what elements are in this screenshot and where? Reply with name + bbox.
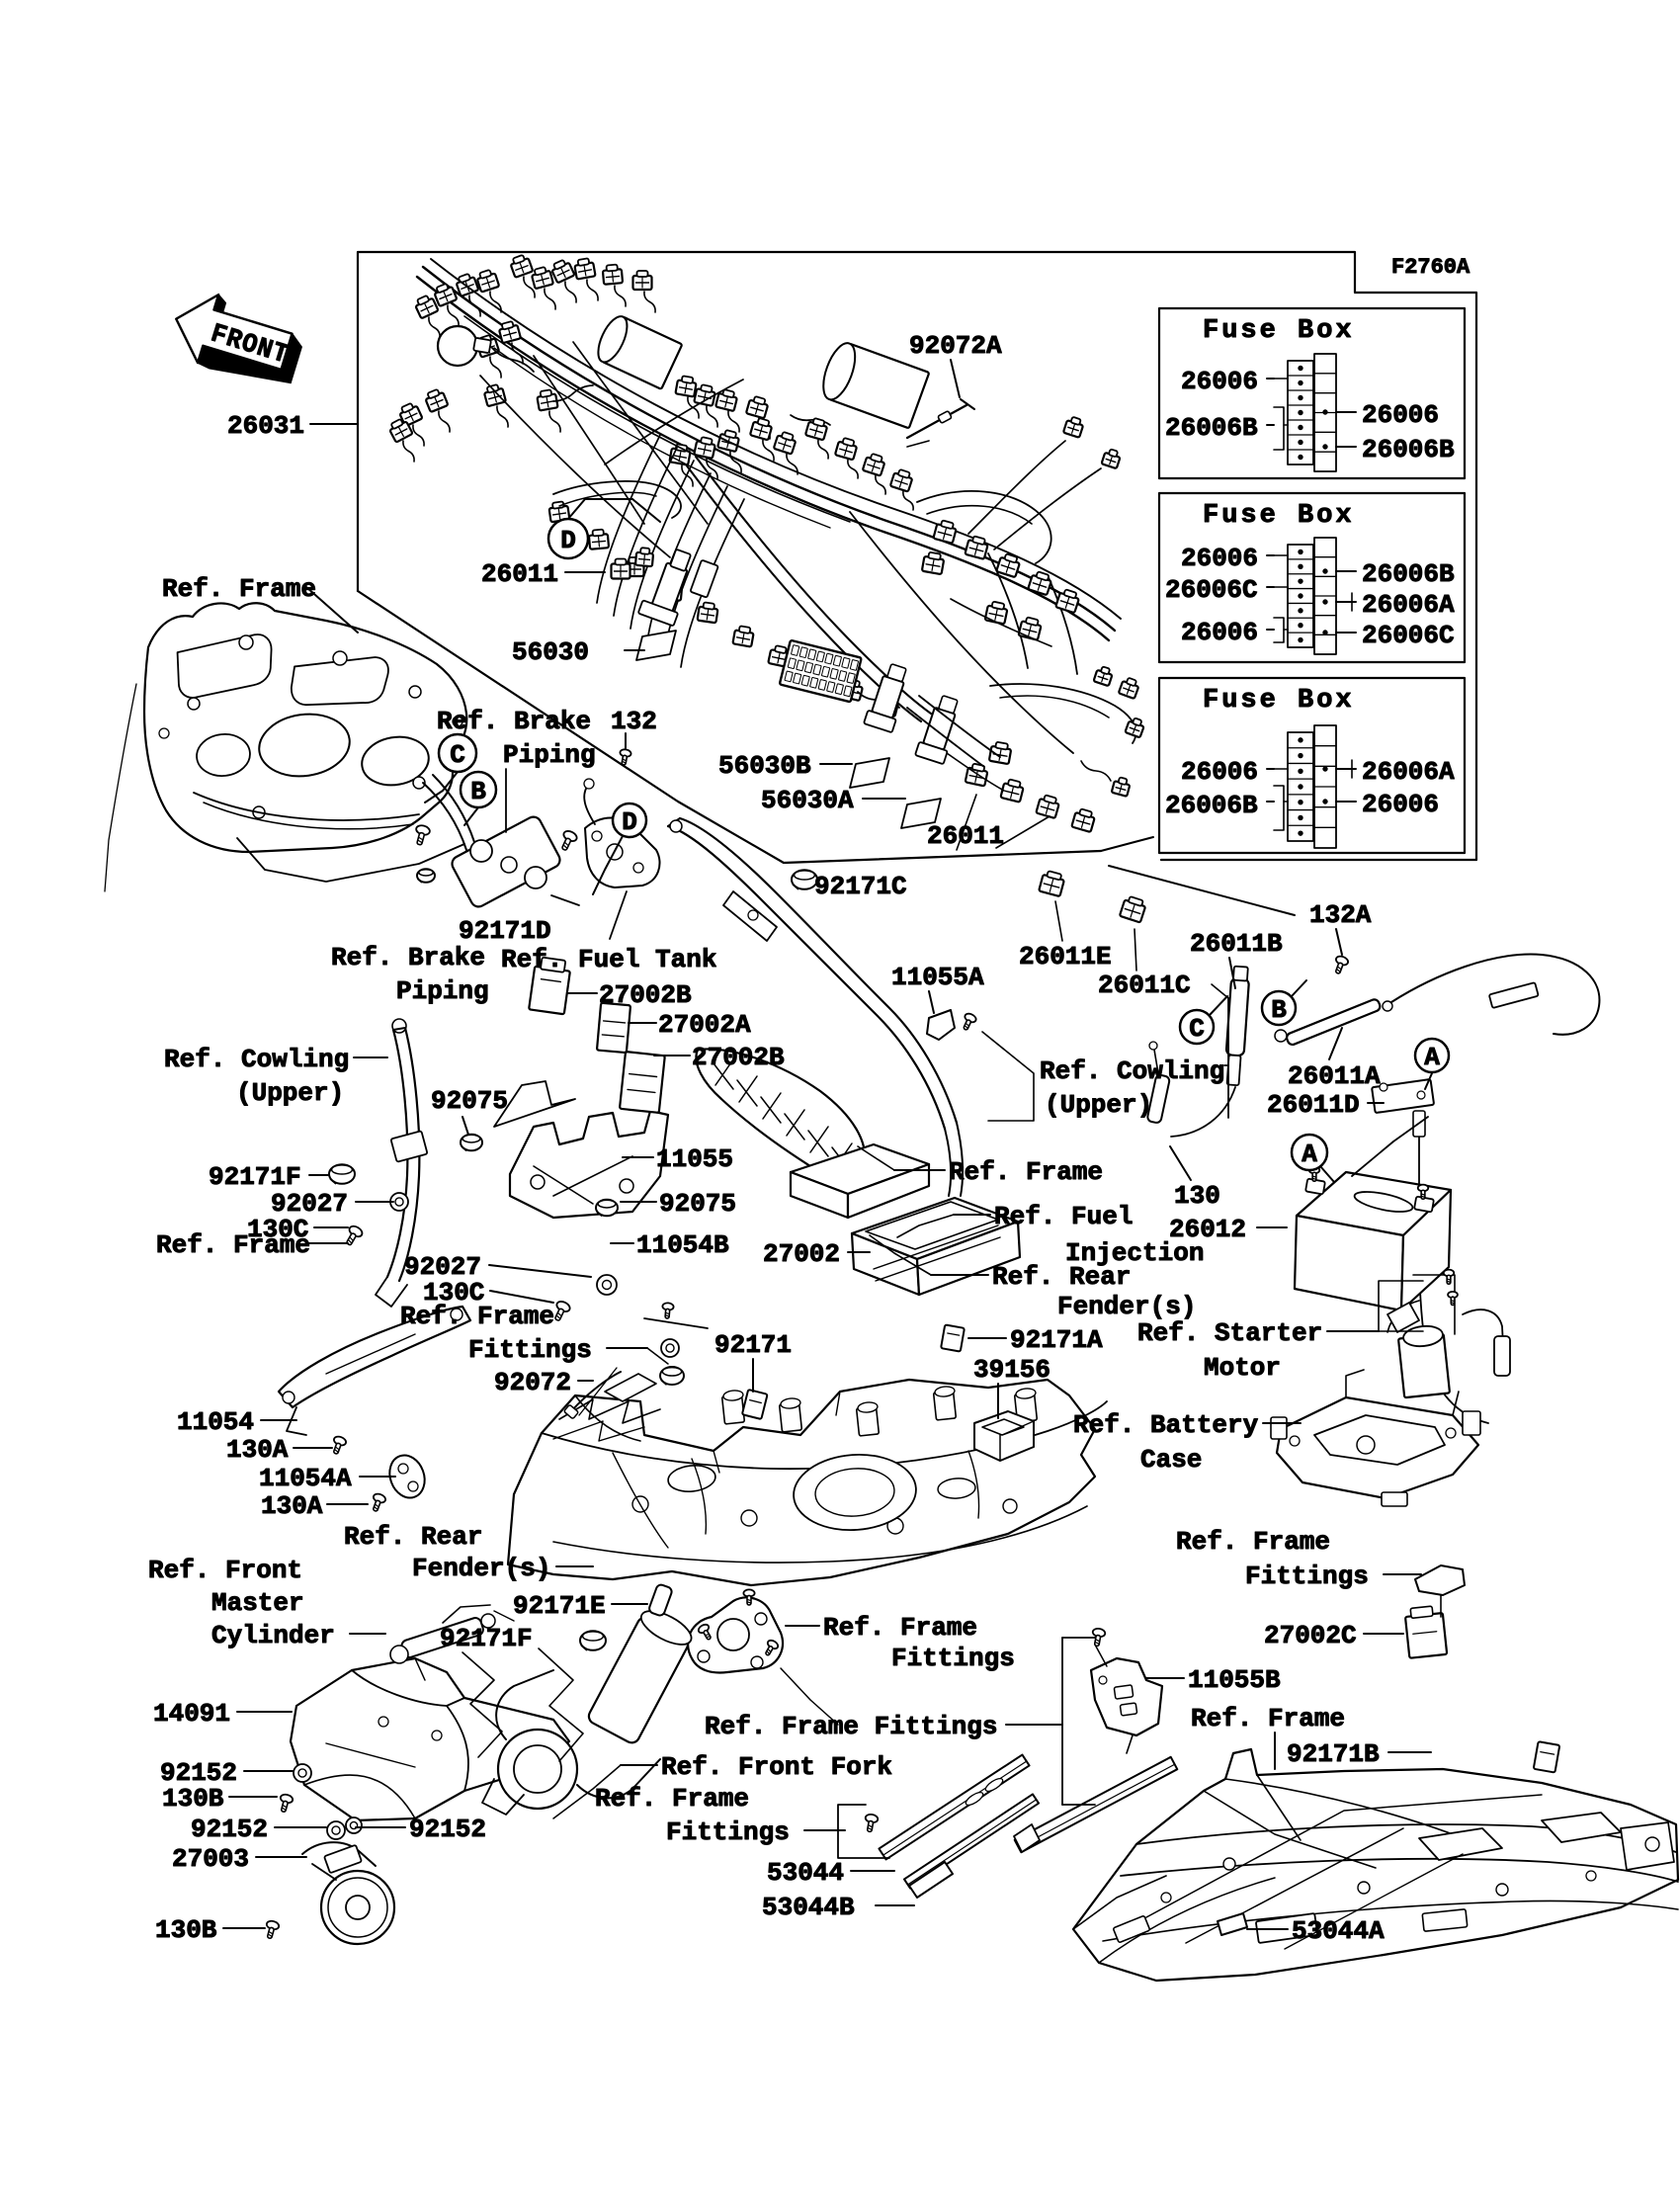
svg-text:B: B: [1271, 995, 1287, 1025]
svg-text:Ref. Rear: Ref. Rear: [992, 1262, 1131, 1292]
svg-text:Fuse Box: Fuse Box: [1203, 316, 1355, 346]
svg-text:Master: Master: [211, 1588, 304, 1618]
svg-text:26006C: 26006C: [1362, 621, 1455, 650]
svg-text:Fittings: Fittings: [1245, 1562, 1369, 1591]
svg-text:26011D: 26011D: [1267, 1090, 1360, 1120]
svg-text:56030: 56030: [512, 637, 589, 667]
svg-text:Ref. Fuel: Ref. Fuel: [994, 1202, 1133, 1231]
svg-text:132A: 132A: [1309, 900, 1372, 930]
svg-text:Fender(s): Fender(s): [412, 1554, 550, 1583]
svg-text:130A: 130A: [226, 1435, 289, 1465]
svg-text:Ref. Front Fork: Ref. Front Fork: [661, 1752, 892, 1782]
svg-text:92152: 92152: [191, 1815, 268, 1844]
svg-text:132: 132: [611, 707, 657, 736]
svg-text:A: A: [1424, 1043, 1440, 1072]
svg-text:39156: 39156: [973, 1355, 1050, 1385]
svg-text:C: C: [450, 740, 465, 770]
svg-text:D: D: [622, 807, 637, 837]
svg-text:92072A: 92072A: [909, 331, 1002, 361]
svg-text:26011A: 26011A: [1288, 1061, 1381, 1091]
svg-text:56030A: 56030A: [761, 786, 854, 815]
svg-text:Fuse Box: Fuse Box: [1203, 686, 1355, 716]
svg-text:26006B: 26006B: [1362, 559, 1455, 589]
svg-text:11055B: 11055B: [1188, 1665, 1281, 1695]
svg-text:11054: 11054: [177, 1407, 254, 1437]
svg-text:26006B: 26006B: [1362, 435, 1455, 465]
svg-text:Ref. Frame: Ref. Frame: [949, 1157, 1103, 1187]
svg-text:Motor: Motor: [1204, 1353, 1281, 1383]
svg-text:Fender(s): Fender(s): [1057, 1292, 1196, 1321]
svg-text:92075: 92075: [659, 1189, 736, 1219]
svg-text:Ref. Front: Ref. Front: [148, 1556, 302, 1585]
svg-text:130A: 130A: [261, 1491, 323, 1521]
svg-text:11055: 11055: [656, 1144, 733, 1174]
svg-text:92171B: 92171B: [1287, 1739, 1380, 1769]
svg-text:Ref. Frame: Ref. Frame: [595, 1784, 749, 1814]
svg-text:92171A: 92171A: [1010, 1325, 1103, 1355]
svg-text:Piping: Piping: [396, 976, 489, 1006]
svg-text:92171D: 92171D: [459, 916, 551, 946]
svg-text:26006A: 26006A: [1362, 590, 1455, 620]
svg-text:Case: Case: [1140, 1445, 1202, 1475]
svg-text:26006: 26006: [1362, 400, 1439, 430]
svg-text:53044: 53044: [767, 1858, 844, 1888]
svg-text:F2760A: F2760A: [1391, 255, 1470, 280]
svg-text:27002: 27002: [763, 1239, 840, 1269]
svg-text:92075: 92075: [431, 1086, 508, 1116]
svg-text:92171C: 92171C: [814, 872, 907, 901]
svg-text:Fittings: Fittings: [666, 1817, 790, 1847]
svg-text:Fittings: Fittings: [891, 1644, 1015, 1673]
svg-text:Piping: Piping: [503, 740, 596, 770]
svg-text:92171E: 92171E: [513, 1591, 606, 1621]
svg-text:C: C: [1189, 1014, 1205, 1044]
svg-text:14091: 14091: [153, 1699, 230, 1729]
svg-text:27002A: 27002A: [658, 1010, 751, 1040]
svg-text:53044B: 53044B: [762, 1893, 855, 1922]
svg-text:26006B: 26006B: [1165, 791, 1258, 820]
svg-text:92171F: 92171F: [440, 1624, 533, 1653]
svg-text:Ref. Brake: Ref. Brake: [331, 943, 485, 972]
svg-text:26011C: 26011C: [1098, 971, 1191, 1000]
svg-text:26011E: 26011E: [1019, 942, 1112, 972]
svg-text:Ref. Frame: Ref. Frame: [823, 1613, 977, 1643]
svg-text:26011B: 26011B: [1190, 929, 1283, 959]
svg-text:(Upper): (Upper): [1045, 1090, 1152, 1120]
svg-text:Ref. Fuel Tank: Ref. Fuel Tank: [501, 945, 716, 974]
svg-text:Fuse Box: Fuse Box: [1203, 501, 1355, 531]
svg-text:56030B: 56030B: [718, 751, 811, 781]
svg-text:Cylinder: Cylinder: [211, 1621, 335, 1650]
svg-text:Ref. Cowling: Ref. Cowling: [1040, 1056, 1224, 1086]
svg-text:27002C: 27002C: [1264, 1621, 1357, 1650]
svg-text:92072: 92072: [494, 1368, 571, 1397]
svg-text:B: B: [470, 777, 486, 806]
svg-text:27002B: 27002B: [599, 980, 692, 1010]
svg-text:Ref. Frame Fittings: Ref. Frame Fittings: [705, 1712, 997, 1741]
svg-text:Ref. Frame: Ref. Frame: [400, 1302, 554, 1331]
svg-text:Ref. Cowling: Ref. Cowling: [164, 1045, 349, 1074]
svg-text:Ref. Battery: Ref. Battery: [1073, 1410, 1259, 1440]
svg-text:11054A: 11054A: [259, 1464, 352, 1493]
svg-text:27002B: 27002B: [692, 1043, 785, 1072]
svg-text:130: 130: [1174, 1181, 1220, 1211]
svg-text:D: D: [560, 526, 576, 555]
svg-text:92152: 92152: [409, 1815, 486, 1844]
svg-text:130B: 130B: [155, 1915, 217, 1945]
svg-text:26006A: 26006A: [1362, 757, 1455, 787]
svg-text:92171: 92171: [714, 1330, 792, 1360]
svg-text:26031: 26031: [227, 411, 304, 441]
svg-text:26006: 26006: [1362, 790, 1439, 819]
svg-text:A: A: [1302, 1140, 1317, 1169]
svg-text:92171F: 92171F: [209, 1162, 301, 1192]
svg-text:27003: 27003: [172, 1844, 249, 1874]
svg-text:Fittings: Fittings: [468, 1335, 592, 1365]
svg-text:130B: 130B: [162, 1784, 224, 1814]
svg-text:11055A: 11055A: [891, 963, 984, 992]
svg-text:26006: 26006: [1181, 757, 1258, 787]
svg-text:26006C: 26006C: [1165, 575, 1258, 605]
svg-text:26011: 26011: [927, 821, 1004, 851]
svg-text:26011: 26011: [481, 559, 558, 589]
svg-text:Ref. Frame: Ref. Frame: [1176, 1527, 1330, 1557]
svg-text:53044A: 53044A: [1292, 1916, 1385, 1946]
svg-text:26006: 26006: [1181, 618, 1258, 647]
svg-text:11054B: 11054B: [636, 1230, 729, 1260]
svg-text:Ref. Starter: Ref. Starter: [1137, 1318, 1322, 1348]
svg-text:26006: 26006: [1181, 544, 1258, 573]
svg-text:Ref. Frame: Ref. Frame: [1191, 1704, 1345, 1733]
svg-text:26006: 26006: [1181, 367, 1258, 396]
svg-text:Ref. Brake: Ref. Brake: [437, 707, 591, 736]
svg-text:Ref. Frame: Ref. Frame: [156, 1230, 310, 1260]
svg-text:Ref. Frame: Ref. Frame: [162, 574, 316, 604]
svg-text:26006B: 26006B: [1165, 413, 1258, 443]
svg-text:Ref. Rear: Ref. Rear: [344, 1522, 482, 1552]
svg-text:(Upper): (Upper): [236, 1078, 344, 1108]
